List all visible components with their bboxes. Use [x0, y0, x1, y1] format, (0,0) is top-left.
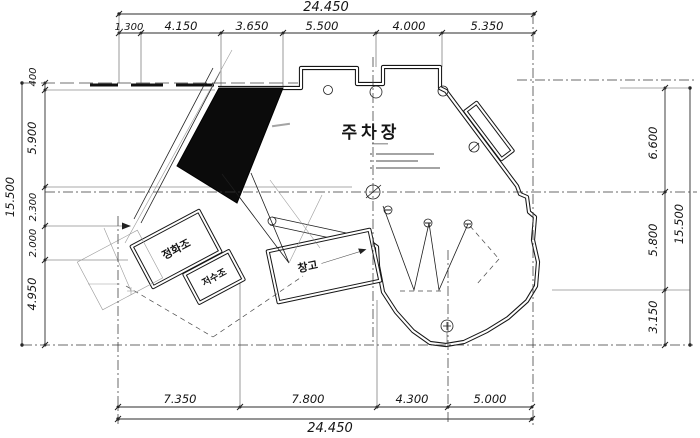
room-storage: 창고	[268, 230, 381, 302]
building-layer: 정화조 저수조 창고	[77, 50, 538, 345]
dim-right-1: 6.600	[646, 127, 660, 160]
dim-top-6: 5.350	[471, 19, 504, 33]
parking-area-label: 주차장	[342, 123, 401, 143]
dim-bottom-1: 7.350	[164, 392, 197, 406]
dim-bottom-total: 24.450	[307, 421, 353, 436]
axis-layer	[22, 14, 697, 428]
dim-left-4: 2.000	[28, 229, 39, 258]
dim-top-2: 4.150	[165, 19, 198, 33]
roof-lines-center	[383, 206, 499, 291]
dim-bottom-2: 7.800	[292, 392, 325, 406]
floor-plan-canvas: 24.450 1.300 4.150 3.650 5.500 4.000 5.3…	[0, 0, 700, 438]
dim-bottom-4: 5.000	[474, 392, 507, 406]
section-marks	[366, 142, 479, 344]
dim-right-total: 15.500	[672, 204, 686, 244]
dim-top-total: 24.450	[303, 0, 349, 15]
dim-left-3: 2.300	[28, 193, 39, 222]
column-circles	[324, 86, 473, 229]
dim-left-total: 15.500	[3, 177, 17, 217]
arrowhead	[122, 223, 131, 230]
dim-left-5: 4.950	[25, 278, 39, 311]
dim-right-2: 5.800	[646, 224, 660, 257]
drawing-sheet: 24.450 1.300 4.150 3.650 5.500 4.000 5.3…	[0, 0, 700, 438]
solid-filled-area	[177, 88, 283, 203]
dim-left-2: 5.900	[25, 122, 39, 155]
dim-bottom-3: 4.300	[396, 392, 429, 406]
dim-top-5: 4.000	[393, 19, 426, 33]
dim-top-3: 3.650	[236, 19, 269, 33]
dim-left-1: 400	[28, 67, 39, 86]
dimension-layer: 24.450 1.300 4.150 3.650 5.500 4.000 5.3…	[3, 0, 692, 436]
dim-top-4: 5.500	[306, 19, 339, 33]
dim-right-3: 3.150	[646, 301, 660, 334]
